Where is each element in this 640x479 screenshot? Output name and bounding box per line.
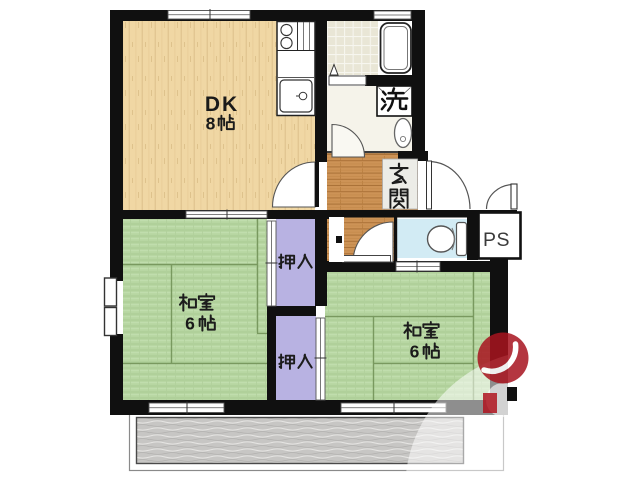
svg-text:PS: PS [483, 229, 510, 251]
svg-text:6: 6 [410, 342, 420, 362]
svg-text:6: 6 [185, 314, 195, 334]
svg-text:8: 8 [206, 114, 216, 134]
